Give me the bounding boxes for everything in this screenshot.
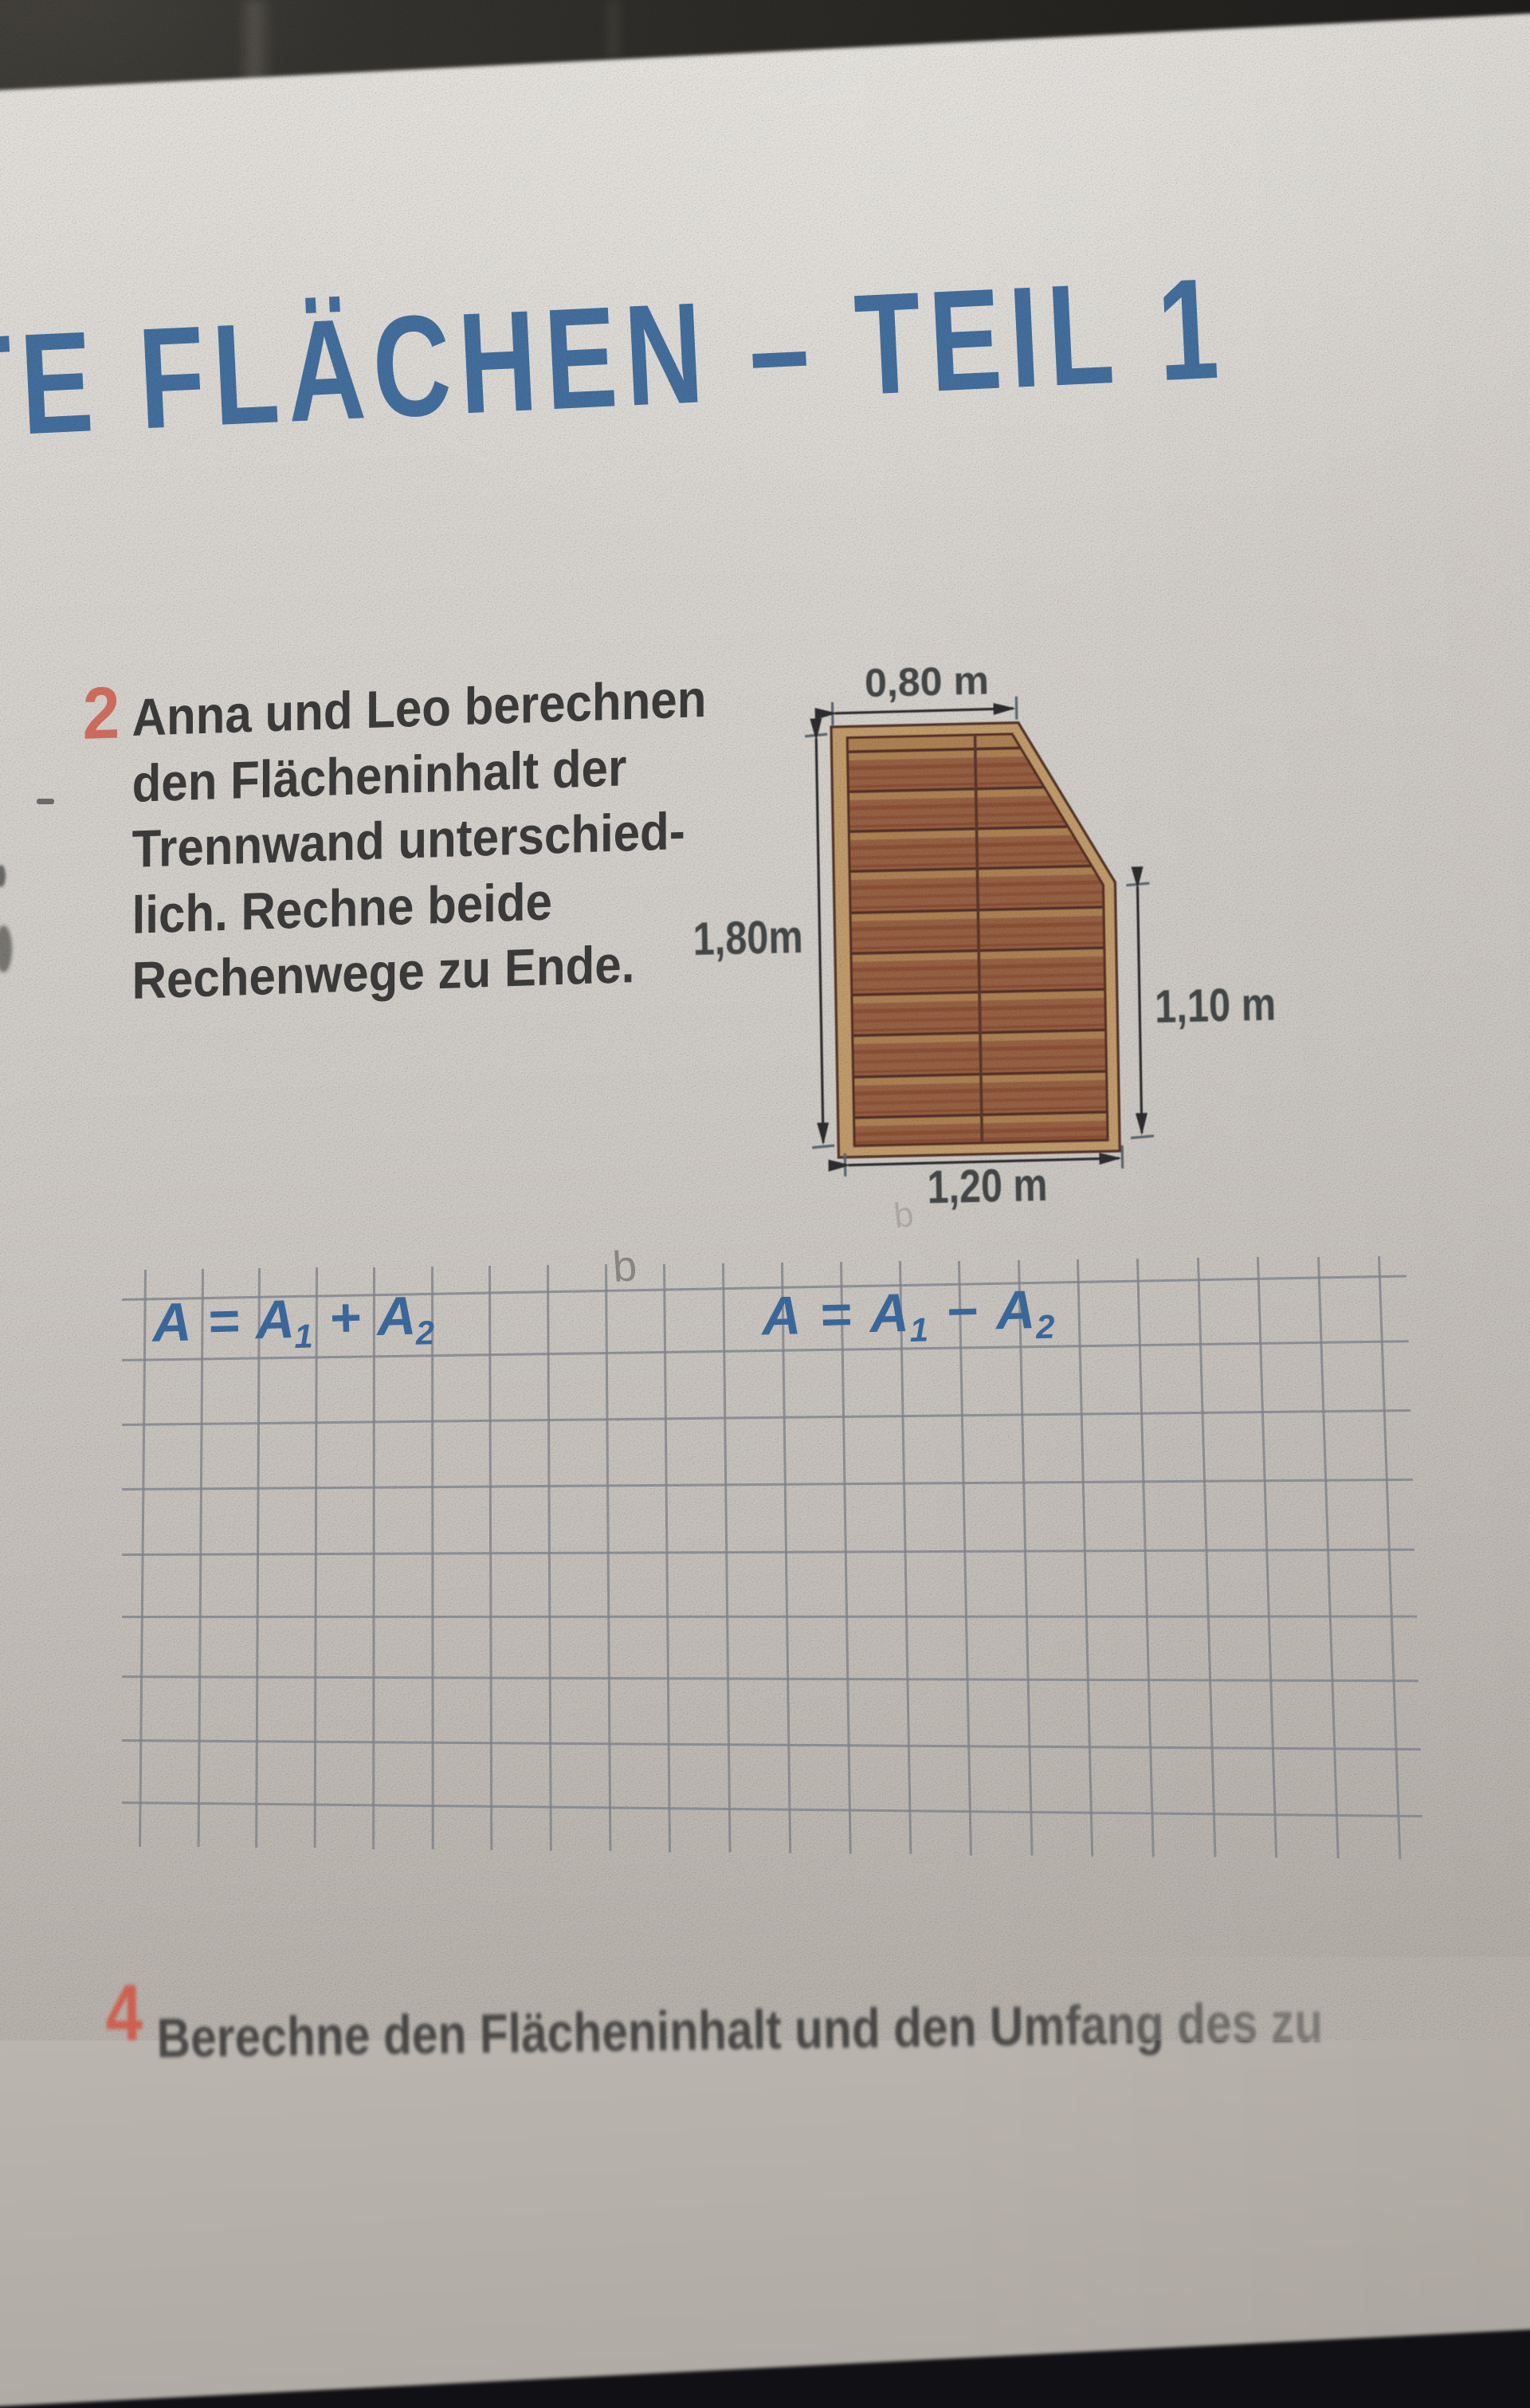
svg-text:1,80m: 1,80m bbox=[692, 911, 803, 965]
svg-text:1,10 m: 1,10 m bbox=[1155, 978, 1277, 1032]
svg-text:0,80 m: 0,80 m bbox=[865, 658, 990, 705]
svg-text:1,20 m: 1,20 m bbox=[927, 1159, 1048, 1213]
